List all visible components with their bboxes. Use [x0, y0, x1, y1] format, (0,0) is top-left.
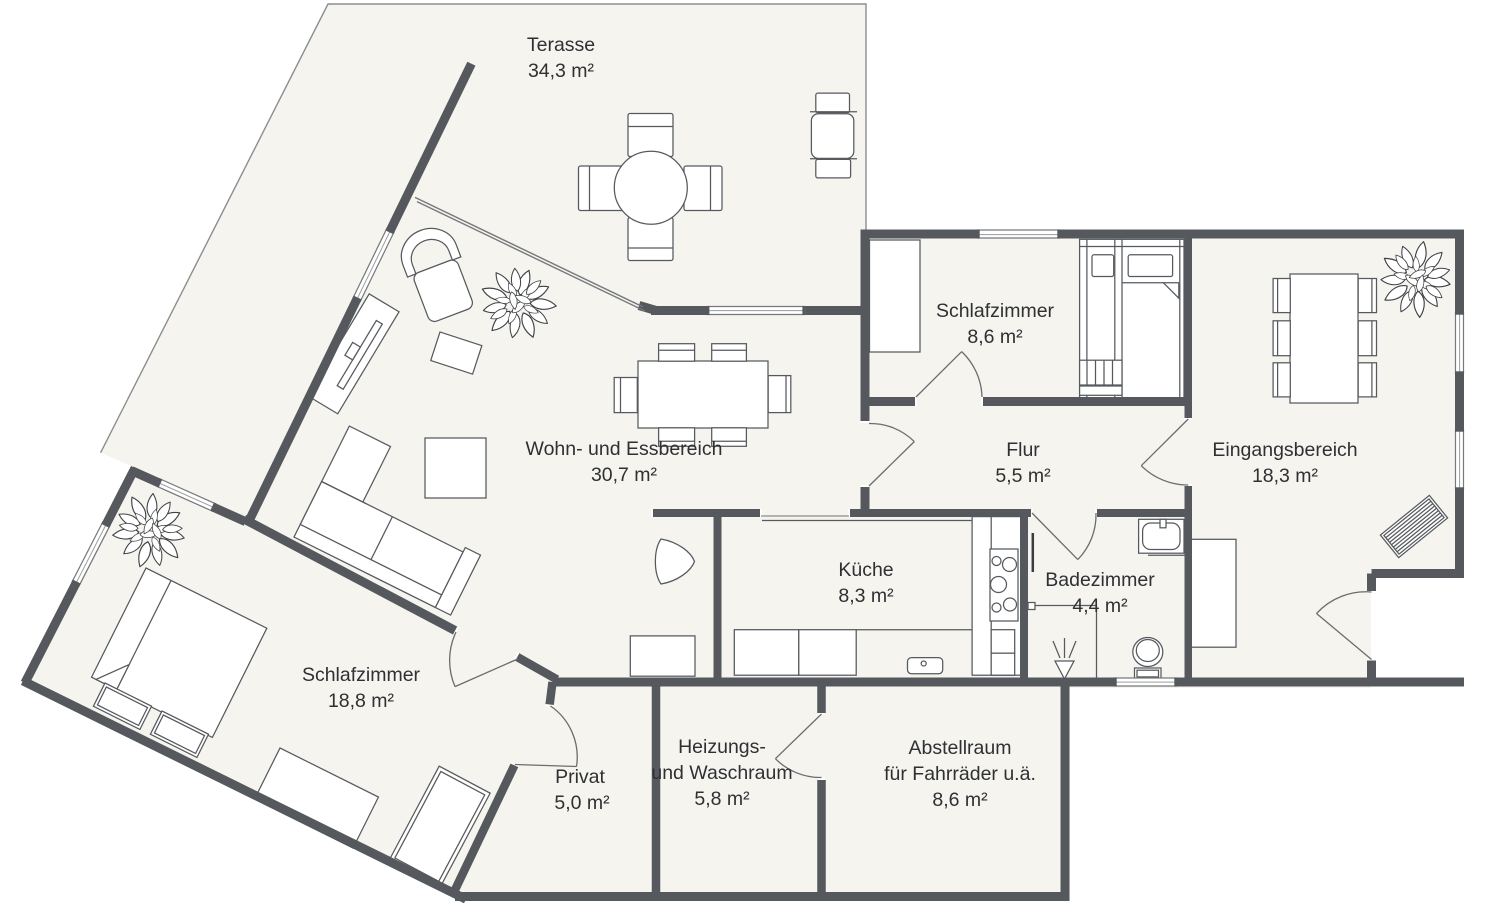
svg-text:für Fahrräder u.ä.: für Fahrräder u.ä.	[884, 763, 1036, 785]
svg-text:18,8 m²: 18,8 m²	[328, 690, 395, 712]
svg-text:4,4 m²: 4,4 m²	[1072, 595, 1128, 617]
svg-text:Badezimmer: Badezimmer	[1045, 569, 1155, 591]
svg-text:34,3 m²: 34,3 m²	[528, 60, 595, 82]
svg-text:Privat: Privat	[555, 766, 605, 788]
svg-text:Eingangsbereich: Eingangsbereich	[1212, 439, 1357, 461]
svg-text:18,3 m²: 18,3 m²	[1252, 465, 1319, 487]
svg-text:Flur: Flur	[1006, 439, 1040, 461]
svg-text:8,6 m²: 8,6 m²	[967, 326, 1023, 348]
svg-text:Wohn- und Essbereich: Wohn- und Essbereich	[526, 438, 723, 460]
svg-text:Schlafzimmer: Schlafzimmer	[936, 300, 1055, 322]
svg-text:8,6 m²: 8,6 m²	[932, 789, 988, 811]
svg-text:5,8 m²: 5,8 m²	[694, 788, 750, 810]
svg-text:Abstellraum: Abstellraum	[909, 737, 1012, 759]
svg-text:Heizungs-: Heizungs-	[678, 736, 766, 758]
svg-text:5,5 m²: 5,5 m²	[995, 465, 1051, 487]
svg-text:Küche: Küche	[838, 559, 893, 581]
svg-text:8,3 m²: 8,3 m²	[838, 585, 894, 607]
svg-text:Schlafzimmer: Schlafzimmer	[302, 664, 421, 686]
svg-text:und Waschraum: und Waschraum	[651, 762, 792, 784]
svg-text:30,7 m²: 30,7 m²	[591, 464, 658, 486]
svg-text:Terasse: Terasse	[527, 34, 595, 56]
svg-text:5,0 m²: 5,0 m²	[554, 792, 610, 814]
